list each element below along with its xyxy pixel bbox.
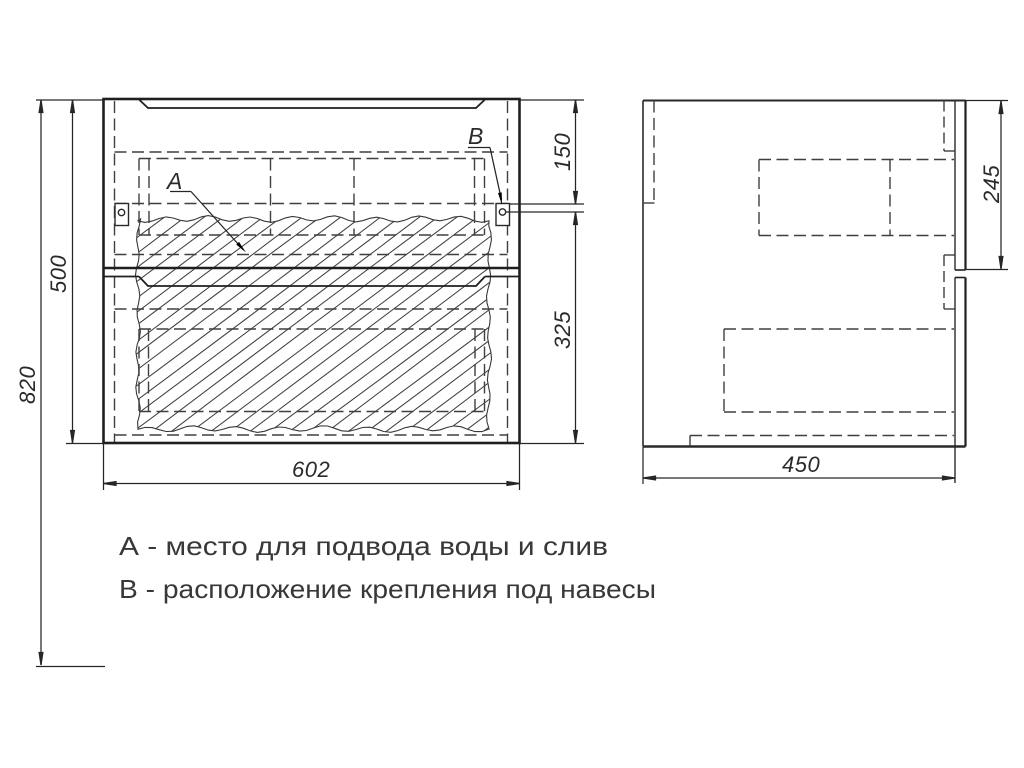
svg-text:325: 325 [550, 311, 575, 349]
svg-text:В: В [468, 123, 483, 149]
svg-text:150: 150 [550, 133, 575, 171]
svg-text:В - расположение крепления под: В - расположение крепления под навесы [119, 574, 656, 604]
svg-text:А - место для подвода воды и с: А - место для подвода воды и слив [119, 531, 608, 561]
svg-text:А: А [165, 168, 182, 194]
svg-text:602: 602 [292, 457, 330, 482]
svg-text:500: 500 [46, 255, 71, 293]
svg-text:245: 245 [979, 165, 1004, 204]
svg-text:450: 450 [782, 452, 820, 477]
svg-text:820: 820 [15, 366, 40, 404]
